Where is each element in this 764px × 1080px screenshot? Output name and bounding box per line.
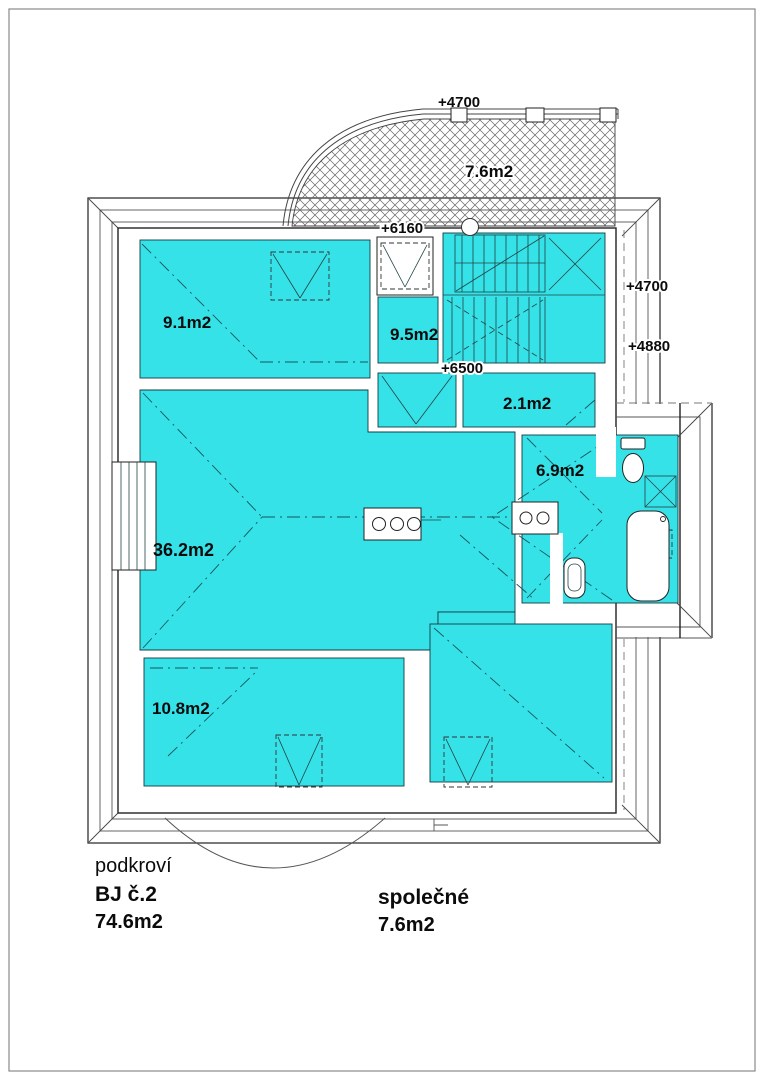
legend-common: společné — [378, 886, 469, 909]
window-icon — [112, 462, 156, 570]
label-elev-right-upper: +4700 — [626, 278, 668, 295]
balcony-deck — [292, 119, 615, 226]
label-room-2-1: 2.1m2 — [503, 394, 551, 413]
label-elev-balcony: +4700 — [438, 94, 480, 111]
room-staircase — [443, 233, 605, 363]
balcony — [283, 108, 618, 226]
basin-icon — [537, 512, 549, 524]
floor-plan-page: 7.6m2 +4700 +6160 +6500 +4700 +4880 9.1m… — [0, 0, 764, 1080]
basin-icon — [520, 512, 532, 524]
label-room-9-5: 9.5m2 — [390, 325, 438, 344]
label-balcony-area: 7.6m2 — [465, 162, 513, 181]
label-elev-stair: +6500 — [441, 360, 483, 377]
legend-unit-area: 74.6m2 — [95, 911, 163, 933]
room-hall-small — [378, 373, 456, 427]
label-room-6-9: 6.9m2 — [536, 461, 584, 480]
label-elev-landing: +6160 — [381, 220, 423, 237]
label-elev-right-lower: +4880 — [628, 338, 670, 355]
room-bottom-right — [430, 624, 612, 782]
burner-icon — [408, 518, 421, 531]
label-room-36-2: 36.2m2 — [153, 540, 214, 560]
floor-plan-canvas: 7.6m2 +4700 +6160 +6500 +4700 +4880 9.1m… — [0, 0, 764, 1080]
railing-post — [600, 108, 616, 122]
burner-icon — [373, 518, 386, 531]
level-marker-circle — [462, 219, 479, 236]
room-10-8 — [144, 658, 404, 786]
burner-icon — [391, 518, 404, 531]
toilet-tank — [621, 438, 645, 449]
legend-floor: podkroví — [95, 855, 172, 877]
legend-unit: BJ č.2 — [95, 883, 157, 906]
legend-common-area: 7.6m2 — [378, 914, 435, 936]
legend: podkroví BJ č.2 74.6m2 společné 7.6m2 — [95, 855, 469, 936]
double-washbasin — [512, 502, 558, 534]
window-left — [112, 462, 156, 570]
railing-post — [526, 108, 544, 122]
toilet-icon — [623, 454, 644, 483]
bathtub-icon — [627, 511, 669, 601]
label-room-9-1: 9.1m2 — [163, 313, 211, 332]
label-room-10-8: 10.8m2 — [152, 699, 210, 718]
